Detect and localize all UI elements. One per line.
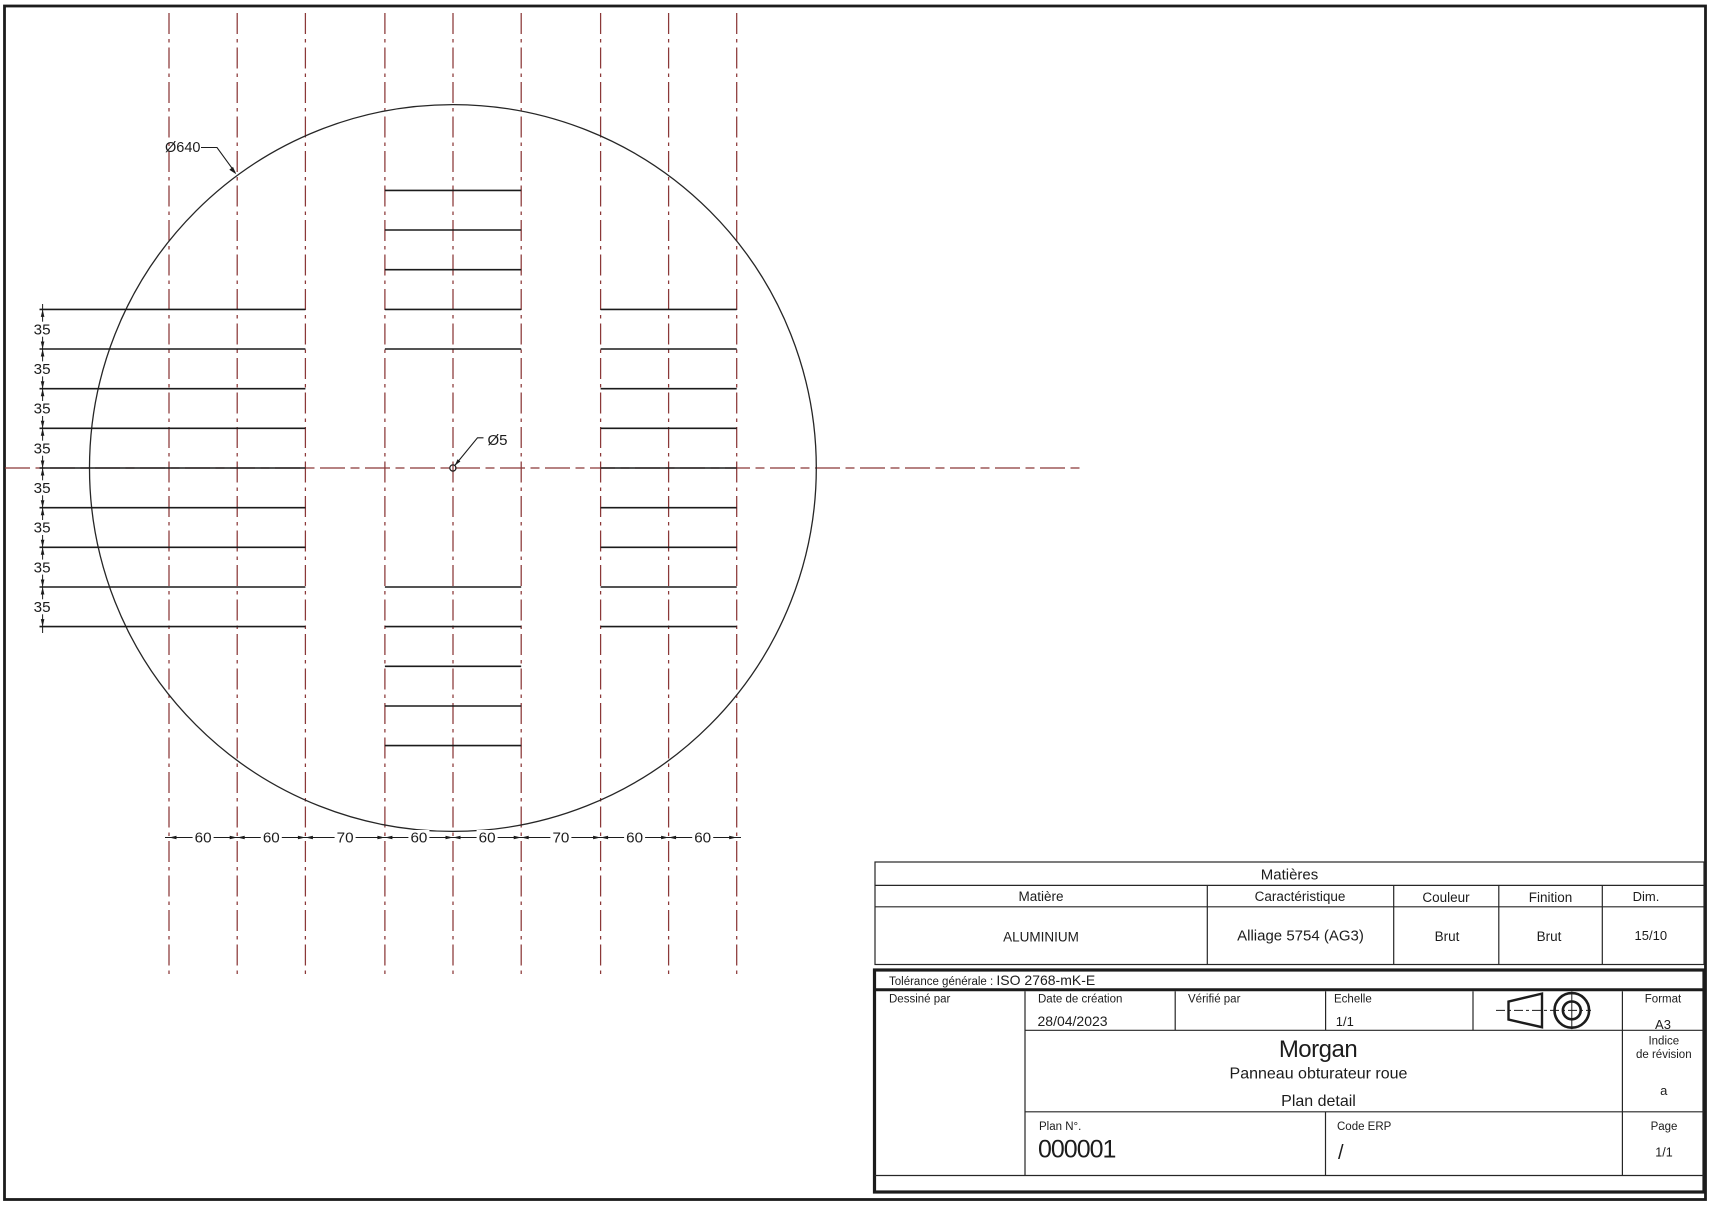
svg-text:Matière: Matière	[1018, 889, 1063, 904]
svg-text:Date de création: Date de création	[1038, 994, 1122, 1006]
svg-text:Caractéristique: Caractéristique	[1255, 889, 1346, 904]
svg-text:35: 35	[34, 559, 51, 576]
svg-text:Couleur: Couleur	[1422, 890, 1470, 905]
svg-text:Brut: Brut	[1537, 929, 1562, 944]
svg-text:70: 70	[552, 830, 569, 847]
svg-text:Indice: Indice	[1648, 1036, 1679, 1048]
svg-text:60: 60	[410, 830, 427, 847]
svg-text:Format: Format	[1645, 994, 1682, 1006]
svg-text:Vérifié par: Vérifié par	[1188, 994, 1241, 1006]
svg-text:Plan detail: Plan detail	[1281, 1093, 1356, 1110]
svg-text:70: 70	[337, 830, 354, 847]
svg-text:Dessiné par: Dessiné par	[889, 994, 951, 1006]
svg-text:Dim.: Dim.	[1633, 889, 1660, 904]
svg-text:/: /	[1338, 1142, 1344, 1164]
svg-text:60: 60	[195, 830, 212, 847]
svg-text:Finition: Finition	[1529, 890, 1573, 905]
svg-text:de révision: de révision	[1636, 1049, 1692, 1061]
svg-text:Morgan: Morgan	[1279, 1036, 1357, 1063]
svg-text:Page: Page	[1651, 1121, 1678, 1133]
svg-text:Ø640: Ø640	[165, 140, 200, 156]
svg-text:ALUMINIUM: ALUMINIUM	[1003, 929, 1079, 944]
svg-text:35: 35	[34, 599, 51, 616]
svg-text:60: 60	[626, 830, 643, 847]
svg-text:35: 35	[34, 361, 51, 378]
svg-text:A3: A3	[1655, 1017, 1671, 1032]
svg-text:Alliage 5754 (AG3): Alliage 5754 (AG3)	[1237, 928, 1364, 945]
svg-text:60: 60	[263, 830, 280, 847]
svg-text:35: 35	[34, 480, 51, 497]
svg-text:35: 35	[34, 520, 51, 537]
svg-text:Ø5: Ø5	[488, 432, 508, 449]
svg-text:Echelle: Echelle	[1334, 994, 1372, 1006]
svg-text:35: 35	[34, 321, 51, 338]
svg-text:Brut: Brut	[1435, 929, 1460, 944]
svg-text:35: 35	[34, 440, 51, 457]
svg-text:a: a	[1660, 1083, 1668, 1098]
svg-text:Code ERP: Code ERP	[1337, 1121, 1392, 1133]
svg-text:000001: 000001	[1038, 1136, 1116, 1164]
svg-text:Plan N°.: Plan N°.	[1039, 1121, 1081, 1133]
svg-text:1/1: 1/1	[1336, 1014, 1354, 1029]
svg-text:35: 35	[34, 401, 51, 418]
svg-text:1/1: 1/1	[1655, 1146, 1672, 1160]
svg-text:60: 60	[479, 830, 496, 847]
svg-text:60: 60	[694, 830, 711, 847]
svg-text:28/04/2023: 28/04/2023	[1038, 1013, 1108, 1029]
svg-text:15/10: 15/10	[1635, 928, 1668, 943]
svg-text:Matières: Matières	[1261, 867, 1319, 884]
svg-text:Panneau obturateur roue: Panneau obturateur roue	[1230, 1066, 1408, 1083]
